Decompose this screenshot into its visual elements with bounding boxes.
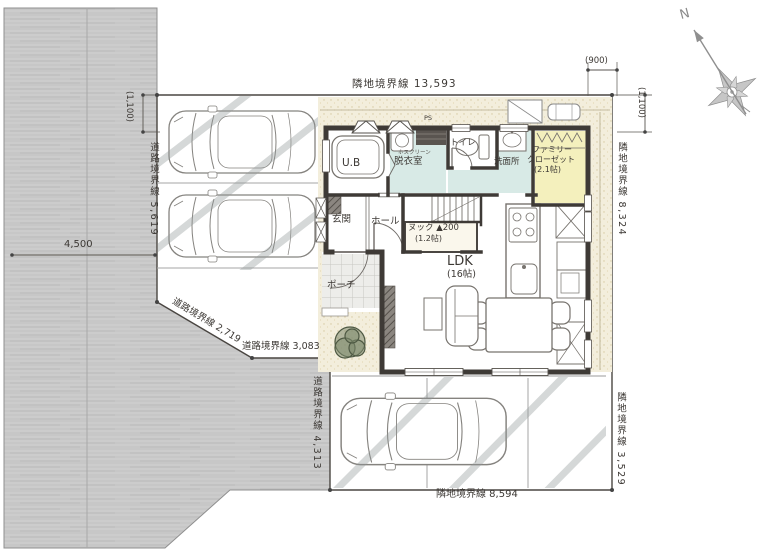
- sofa: [446, 286, 478, 346]
- room-label-family-closet: ファミリー: [532, 146, 572, 154]
- road-area: [4, 8, 330, 548]
- cupboard: [556, 204, 586, 238]
- room-label-unit-bath: U.B: [342, 158, 360, 169]
- compass-rose: [694, 30, 768, 129]
- room-label-washroom: 洗面所: [494, 158, 520, 167]
- pantry-counter: [557, 242, 586, 298]
- dim-top-right-offset: (900): [585, 57, 608, 66]
- label-hosclean: ホスクリーン: [398, 151, 431, 157]
- floor-plan-page: 隣地境界線 13,593 (900) (1,100) (1,100) 道路境界線…: [0, 0, 768, 551]
- room-label-porch: ポーチ: [327, 281, 356, 291]
- dim-left-offset: (1,100): [124, 91, 133, 122]
- dim-road-west: 道路境界線 5,619: [148, 142, 158, 236]
- dim-road-west-lower: 道路境界線 4,313: [311, 376, 321, 470]
- dining-table: [468, 298, 570, 352]
- porch-step: [322, 308, 348, 316]
- dim-right-lower-boundary: 隣地境界線 3,529: [615, 392, 625, 486]
- chair: [550, 302, 570, 324]
- dim-top-boundary: 隣地境界線 13,593: [352, 79, 457, 90]
- room-label-nook: ヌック ▲200: [408, 224, 459, 233]
- vanity-sink-icon: [498, 129, 526, 151]
- tv-board: [383, 286, 395, 348]
- dim-right-upper-boundary: 隣地境界線 8,324: [616, 142, 626, 236]
- room-label-family-closet2: クローゼット: [527, 156, 575, 164]
- room-label-ldk-size: (16帖): [447, 270, 476, 280]
- tree-icon: [335, 327, 365, 358]
- dim-right-upper-offset: (1,100): [636, 87, 645, 118]
- stairs: [432, 195, 481, 222]
- room-label-dressing: 脱衣室: [394, 157, 423, 167]
- room-label-ldk: LDK: [447, 255, 473, 269]
- dim-road-width: 4,500: [64, 240, 93, 251]
- dim-road-south: 道路境界線 3,083: [242, 342, 320, 352]
- label-pipe-space: PS: [424, 115, 432, 122]
- chair: [550, 328, 570, 350]
- shoe-cabinet: [327, 196, 341, 214]
- dim-bottom-boundary: 隣地境界線 8,594: [436, 490, 518, 501]
- kitchen-island: [506, 204, 540, 298]
- room-label-family-closet-size: (2.1帖): [534, 166, 561, 174]
- room-label-entrance: 玄関: [332, 215, 351, 225]
- room-label-hall: ホール: [371, 217, 400, 227]
- ac-outdoor-unit-icon: [548, 104, 580, 120]
- linen-shelf: [416, 129, 446, 145]
- room-label-nook-size: (1.2帖): [415, 235, 442, 243]
- room-label-toilet: トイレ: [450, 139, 476, 148]
- entrance-step-line: [366, 196, 369, 250]
- coffee-table: [424, 298, 442, 330]
